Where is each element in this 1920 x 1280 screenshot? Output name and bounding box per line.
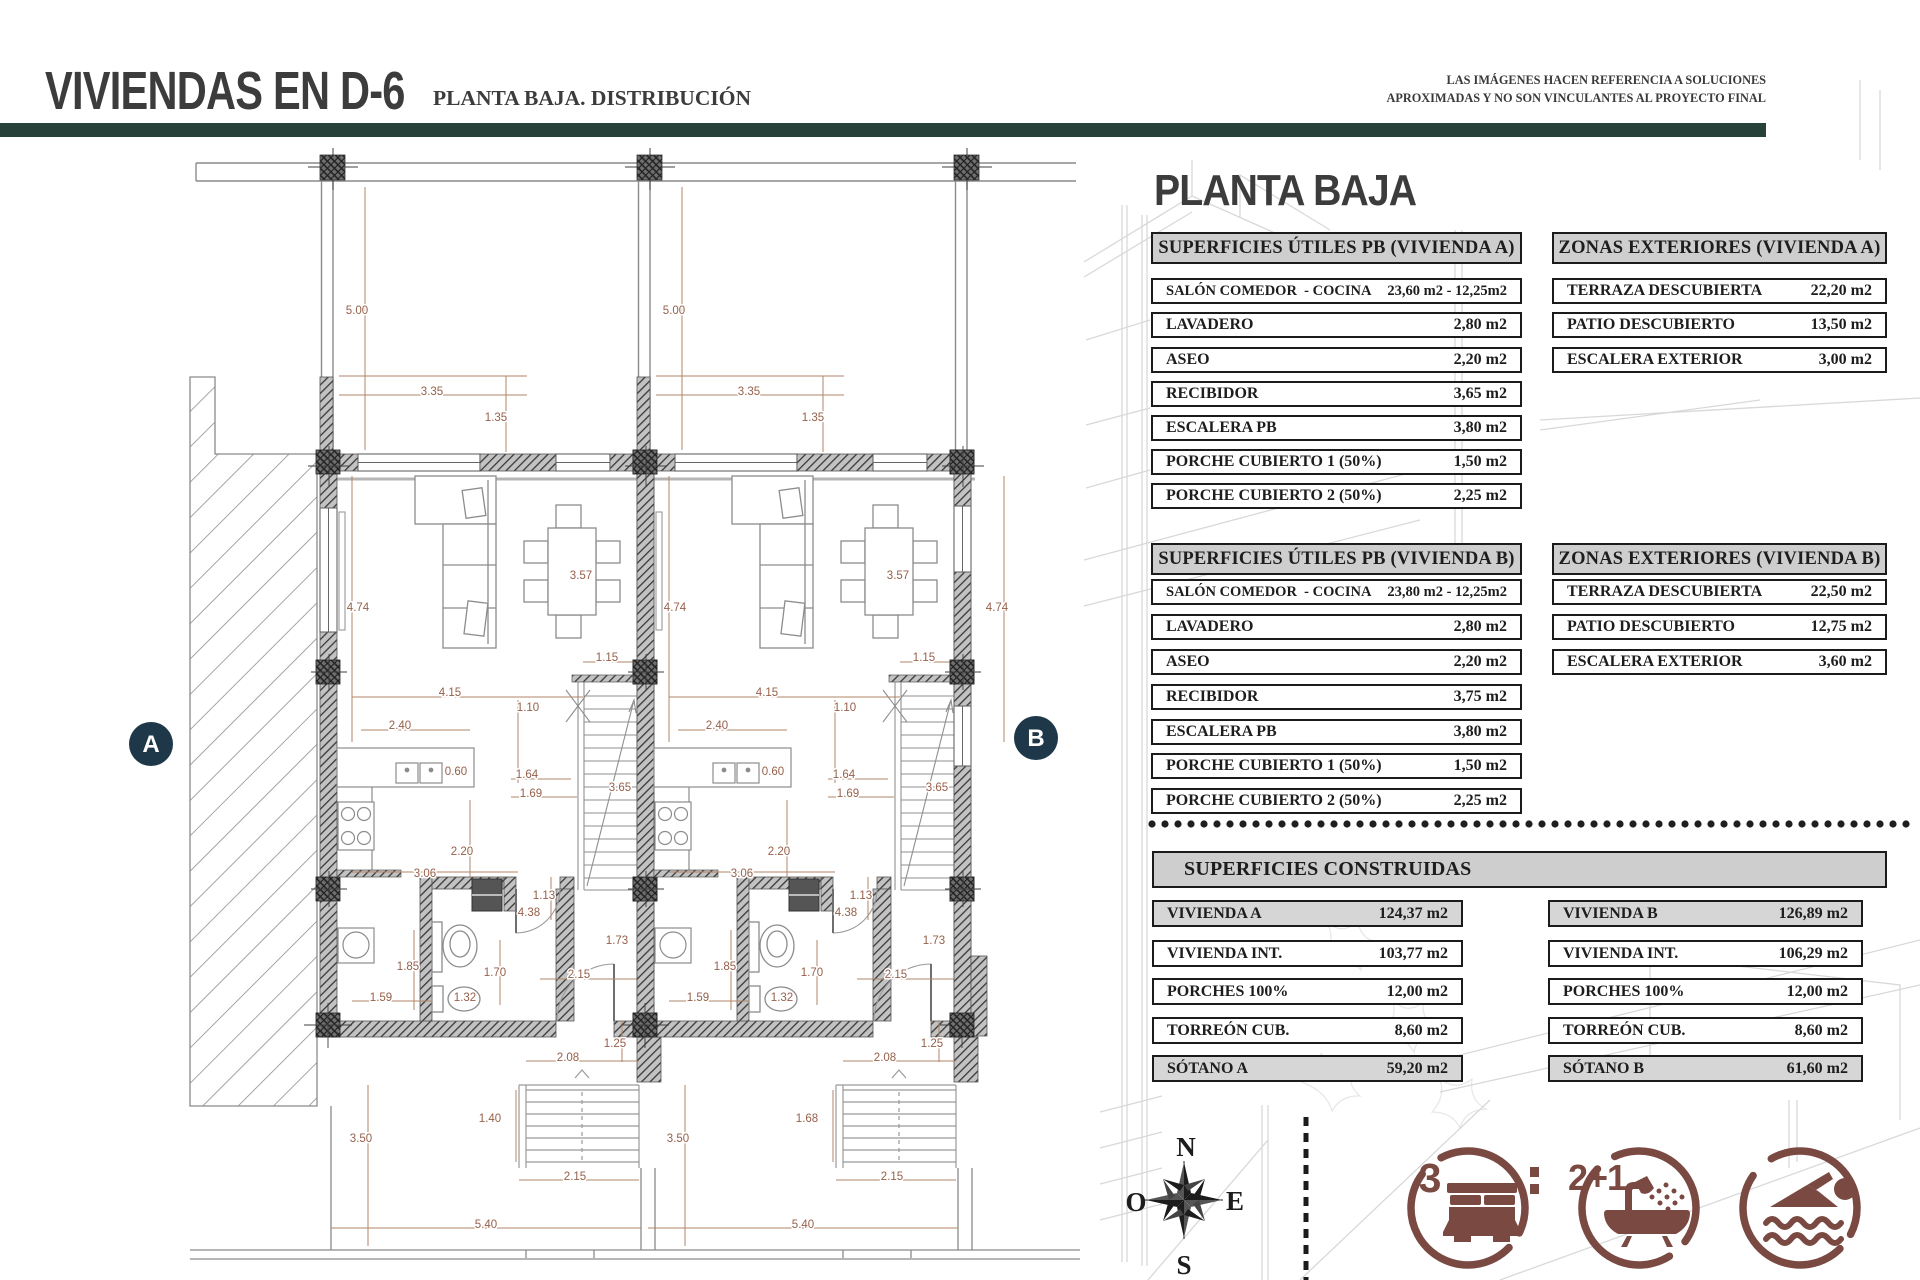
svg-text:2.08: 2.08: [557, 1052, 579, 1064]
svg-text:0.60: 0.60: [445, 766, 467, 778]
svg-text:1.15: 1.15: [596, 652, 618, 664]
svg-text:1.68: 1.68: [796, 1113, 818, 1125]
svg-text:2.15: 2.15: [568, 969, 590, 981]
svg-text:3.57: 3.57: [570, 570, 592, 582]
svg-text:3: 3: [1419, 1155, 1442, 1201]
svg-text:1.70: 1.70: [484, 967, 506, 979]
svg-text:N: N: [1176, 1132, 1196, 1162]
svg-text:E: E: [1226, 1186, 1244, 1216]
svg-text:2.40: 2.40: [389, 720, 411, 732]
svg-text:4.15: 4.15: [439, 687, 461, 699]
svg-text:3.35: 3.35: [421, 386, 443, 398]
svg-text:3.06: 3.06: [414, 868, 436, 880]
svg-text:1.85: 1.85: [397, 961, 419, 973]
svg-text:A: A: [142, 731, 159, 758]
svg-text:2.20: 2.20: [451, 846, 473, 858]
svg-text:O: O: [1125, 1187, 1146, 1217]
svg-text:1.32: 1.32: [454, 992, 476, 1004]
svg-text:2.15: 2.15: [564, 1171, 586, 1183]
svg-text:1.73: 1.73: [606, 935, 628, 947]
svg-text:S: S: [1176, 1250, 1191, 1280]
svg-text:B: B: [1027, 725, 1044, 752]
svg-text:1.13: 1.13: [533, 890, 555, 902]
svg-text:3.50: 3.50: [350, 1133, 372, 1145]
svg-text:3.65: 3.65: [609, 782, 631, 794]
svg-text:5.40: 5.40: [475, 1219, 497, 1231]
svg-text:1.59: 1.59: [370, 992, 392, 1004]
svg-text:1.40: 1.40: [479, 1113, 501, 1125]
svg-text:1.64: 1.64: [516, 769, 539, 781]
svg-text:4.74: 4.74: [986, 602, 1009, 614]
svg-text:1.69: 1.69: [520, 788, 542, 800]
svg-text:1.25: 1.25: [604, 1038, 626, 1050]
svg-text:2+1: 2+1: [1568, 1157, 1627, 1198]
svg-text:1.10: 1.10: [517, 702, 539, 714]
svg-text:1.35: 1.35: [485, 412, 507, 424]
svg-text:4.74: 4.74: [347, 602, 370, 614]
svg-text:4.38: 4.38: [518, 907, 540, 919]
svg-text:5.00: 5.00: [346, 305, 368, 317]
